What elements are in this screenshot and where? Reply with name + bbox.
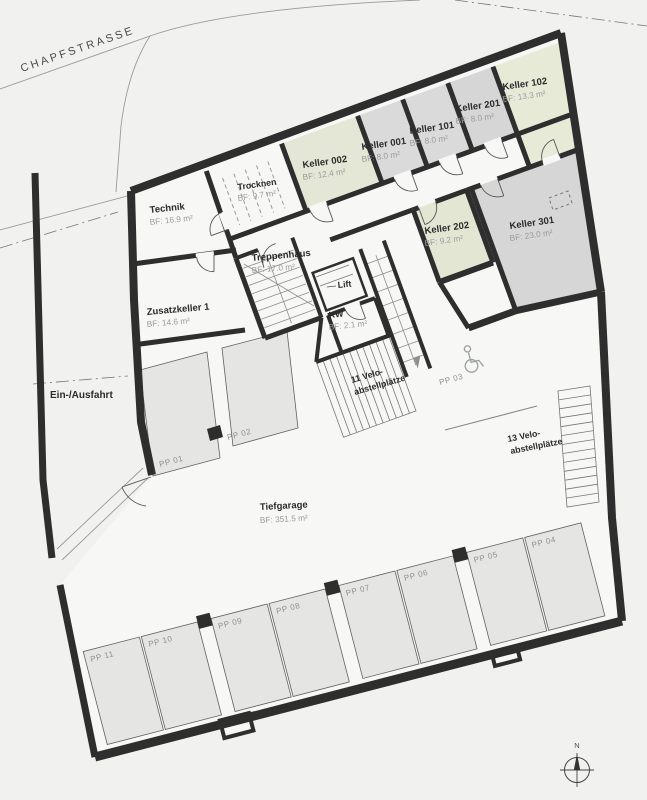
label-lift-name: Lift xyxy=(337,279,352,290)
floor-plan-page: PP 11 PP 10 PP 09 PP 08 PP 07 PP 06 PP 0… xyxy=(0,0,647,800)
wall-site-left xyxy=(35,173,52,558)
north-needle xyxy=(574,754,580,770)
floor-plan-drawing: PP 11 PP 10 PP 09 PP 08 PP 07 PP 06 PP 0… xyxy=(0,0,647,800)
north-arrow: N xyxy=(560,741,594,787)
label-kw-name: KW xyxy=(328,308,344,320)
entrance-label: Ein-/Ausfahrt xyxy=(50,390,113,401)
north-label: N xyxy=(574,741,579,750)
parking-spot-pp02 xyxy=(222,331,298,446)
street-label: CHAPFSTRASSE xyxy=(19,24,136,74)
